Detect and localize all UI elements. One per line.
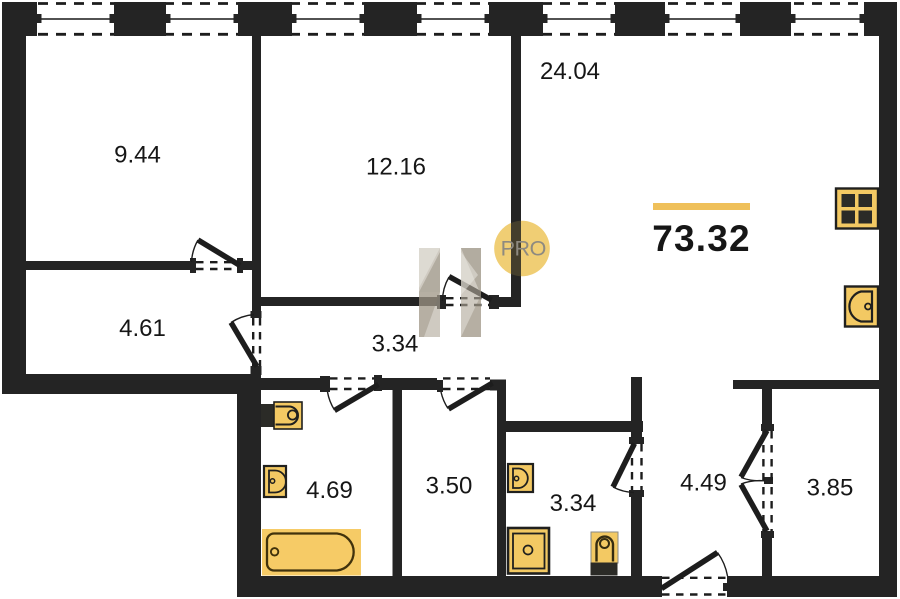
svg-text:3.34: 3.34	[550, 490, 597, 517]
svg-text:PRO: PRO	[501, 236, 546, 260]
svg-text:3.85: 3.85	[807, 475, 854, 502]
svg-text:24.04: 24.04	[540, 58, 600, 85]
svg-text:3.34: 3.34	[372, 331, 419, 358]
svg-text:4.49: 4.49	[680, 470, 727, 497]
svg-text:12.16: 12.16	[366, 154, 426, 181]
svg-text:4.61: 4.61	[119, 315, 166, 342]
svg-text:3.50: 3.50	[426, 473, 473, 500]
svg-text:4.69: 4.69	[306, 477, 353, 504]
svg-text:9.44: 9.44	[114, 142, 161, 169]
svg-text:73.32: 73.32	[652, 218, 751, 259]
